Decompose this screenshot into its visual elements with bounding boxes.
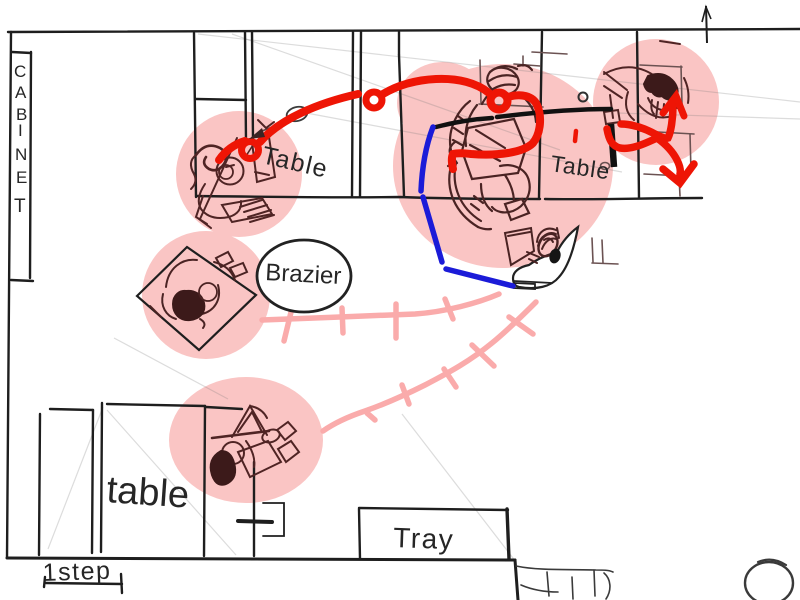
svg-text:Brazier: Brazier bbox=[265, 259, 342, 290]
svg-text:N: N bbox=[15, 145, 27, 164]
svg-text:Tray: Tray bbox=[393, 522, 455, 555]
svg-text:C: C bbox=[14, 62, 26, 81]
svg-text:I: I bbox=[18, 121, 23, 140]
svg-text:A: A bbox=[15, 83, 27, 102]
svg-text:E: E bbox=[16, 168, 27, 187]
svg-text:1step: 1step bbox=[42, 557, 112, 587]
svg-text:table: table bbox=[105, 469, 190, 517]
svg-text:T: T bbox=[14, 196, 26, 217]
